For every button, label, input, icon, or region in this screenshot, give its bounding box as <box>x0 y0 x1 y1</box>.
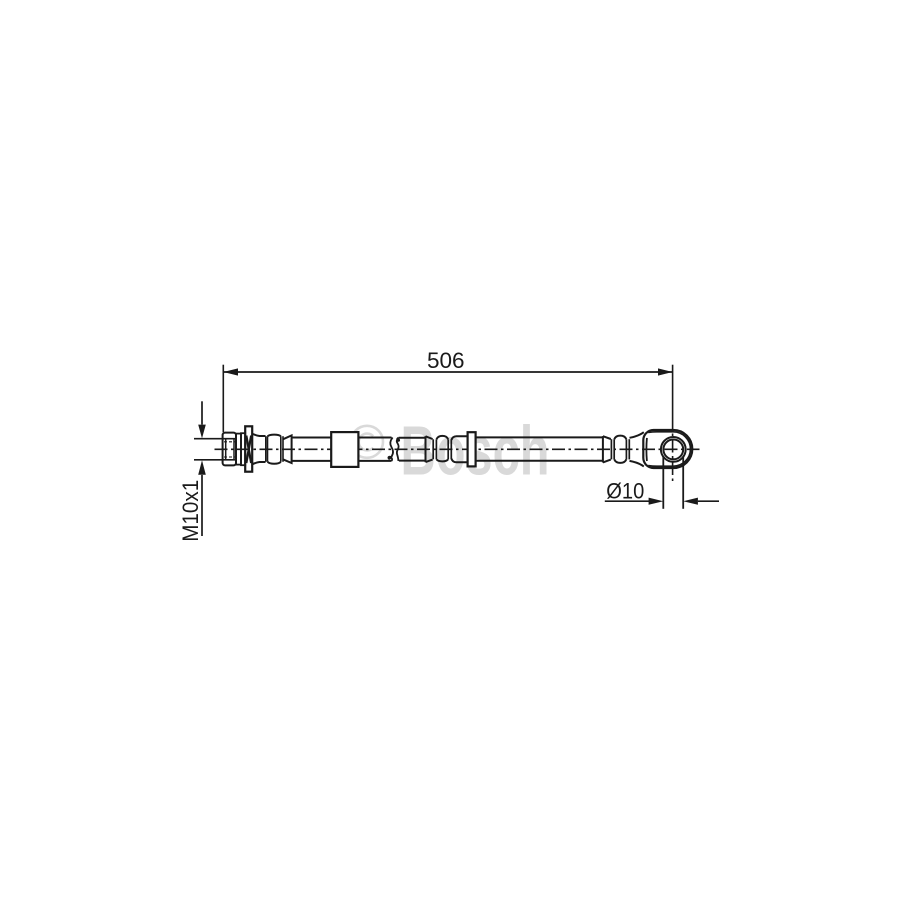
svg-text:M10x1: M10x1 <box>178 480 203 542</box>
svg-text:Ø10: Ø10 <box>606 478 644 503</box>
svg-text:506: 506 <box>427 348 465 373</box>
